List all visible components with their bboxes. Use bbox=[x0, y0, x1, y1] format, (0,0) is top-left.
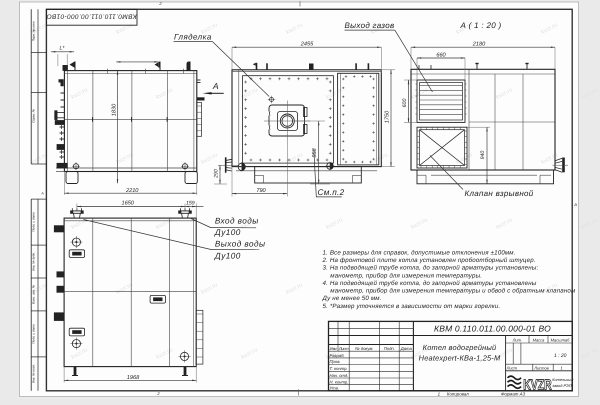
svg-text:1968: 1968 bbox=[127, 375, 140, 381]
svg-text:завод РЭП: завод РЭП bbox=[551, 383, 572, 388]
svg-text:Вход воды: Вход воды bbox=[215, 217, 259, 226]
svg-text:манометр, прибор для измерения: манометр, прибор для измерения температу… bbox=[330, 272, 482, 279]
svg-text:1750: 1750 bbox=[384, 110, 390, 123]
svg-text:Т. контр.: Т. контр. bbox=[330, 366, 348, 371]
svg-text:Копировал: Копировал bbox=[447, 392, 469, 397]
svg-text:1650: 1650 bbox=[121, 200, 134, 206]
svg-text:1830: 1830 bbox=[112, 103, 118, 116]
svg-text:Лист: Лист bbox=[506, 366, 518, 371]
svg-text:Справ. №: Справ. № bbox=[32, 108, 36, 123]
svg-text:2180: 2180 bbox=[472, 42, 486, 48]
svg-text:Подп.: Подп. bbox=[384, 346, 395, 351]
svg-text:KVZR: KVZR bbox=[523, 377, 552, 393]
svg-text:Выход воды: Выход воды bbox=[215, 239, 266, 248]
svg-text:Ду100: Ду100 bbox=[214, 228, 241, 237]
svg-text:5. *Размер уточняется в зависи: 5. *Размер уточняется в зависимости от м… bbox=[323, 303, 501, 310]
svg-text:Изм: Изм bbox=[330, 346, 337, 351]
svg-text:№ докум.: № докум. bbox=[355, 346, 373, 351]
svg-text:290: 290 bbox=[213, 169, 219, 179]
svg-text:Подп. и дата: Подп. и дата bbox=[32, 324, 36, 344]
svg-text:Ду100: Ду100 bbox=[214, 252, 241, 261]
svg-text:Масштаб: Масштаб bbox=[551, 337, 570, 342]
svg-text:958: 958 bbox=[312, 147, 318, 157]
svg-text:Утв.: Утв. bbox=[330, 385, 340, 390]
svg-text:Лист: Лист bbox=[338, 346, 349, 351]
svg-text:А: А bbox=[573, 202, 577, 207]
svg-text:См.п.2: См.п.2 bbox=[318, 188, 345, 197]
svg-text:1: 1 bbox=[560, 366, 562, 371]
svg-text:Пров.: Пров. bbox=[330, 359, 341, 364]
svg-text:Масса: Масса bbox=[533, 337, 546, 342]
svg-text:А ( 1 : 20 ): А ( 1 : 20 ) bbox=[460, 21, 502, 30]
svg-text:1. Все размеры для справок, до: 1. Все размеры для справок, допустимые о… bbox=[323, 249, 516, 256]
svg-text:Котел водогрейный: Котел водогрейный bbox=[423, 343, 497, 352]
svg-text:600: 600 bbox=[402, 99, 408, 108]
svg-text:Клапан взрывной: Клапан взрывной bbox=[464, 189, 533, 198]
svg-text:Котельный: Котельный bbox=[552, 377, 574, 382]
svg-text:Heatexpert-КВа-1,25-М: Heatexpert-КВа-1,25-М bbox=[419, 354, 501, 363]
svg-text:1 : 20: 1 : 20 bbox=[554, 353, 567, 359]
svg-text:КВМ0.110.011.00.000-01ВО: КВМ0.110.011.00.000-01ВО bbox=[46, 13, 136, 20]
svg-text:Инв. № подл.: Инв. № подл. bbox=[32, 364, 36, 383]
svg-text:Перв. примен.: Перв. примен. bbox=[32, 21, 36, 42]
svg-text:4. На подводящей трубе котла,: 4. На подводящей трубе котла, до запорно… bbox=[323, 280, 537, 287]
svg-text:Дата: Дата bbox=[400, 346, 413, 351]
svg-text:3. На подводящей трубе котла,: 3. На подводящей трубе котла, до запорно… bbox=[323, 265, 539, 272]
svg-text:940: 940 bbox=[480, 151, 486, 160]
svg-text:Гляделка: Гляделка bbox=[174, 33, 212, 42]
svg-text:Ду не менее 50 мм.: Ду не менее 50 мм. bbox=[322, 295, 382, 302]
svg-text:2455: 2455 bbox=[300, 42, 314, 48]
svg-text:660: 660 bbox=[436, 52, 446, 58]
svg-text:Лит.: Лит. bbox=[512, 337, 522, 342]
svg-text:2210: 2210 bbox=[125, 188, 139, 194]
svg-text:790: 790 bbox=[256, 188, 266, 194]
svg-text:Подп. и дата: Подп. и дата bbox=[32, 212, 36, 232]
svg-text:Инв. № дубл.: Инв. № дубл. bbox=[32, 252, 36, 271]
svg-text:Нач. отд.: Нач. отд. bbox=[330, 373, 349, 378]
svg-text:А: А bbox=[212, 81, 219, 91]
svg-text:манометр, прибор для измерения: манометр, прибор для измерения температу… bbox=[330, 288, 576, 295]
svg-text:159: 159 bbox=[186, 200, 195, 206]
svg-text:Н. контр.: Н. контр. bbox=[330, 380, 349, 385]
svg-text:2. На фронтовой плите котла ус: 2. На фронтовой плите котла установлен п… bbox=[322, 257, 536, 264]
svg-text:Взам. инв. №: Взам. инв. № bbox=[32, 284, 36, 304]
svg-text:Листов: Листов bbox=[533, 366, 549, 371]
svg-text:Формат А3: Формат А3 bbox=[501, 392, 526, 397]
svg-text:Разраб.: Разраб. bbox=[330, 353, 345, 358]
svg-text:КВМ 0.110.011.00.000-01 ВО: КВМ 0.110.011.00.000-01 ВО bbox=[434, 324, 551, 334]
svg-text:Выход газов: Выход газов bbox=[345, 21, 395, 30]
